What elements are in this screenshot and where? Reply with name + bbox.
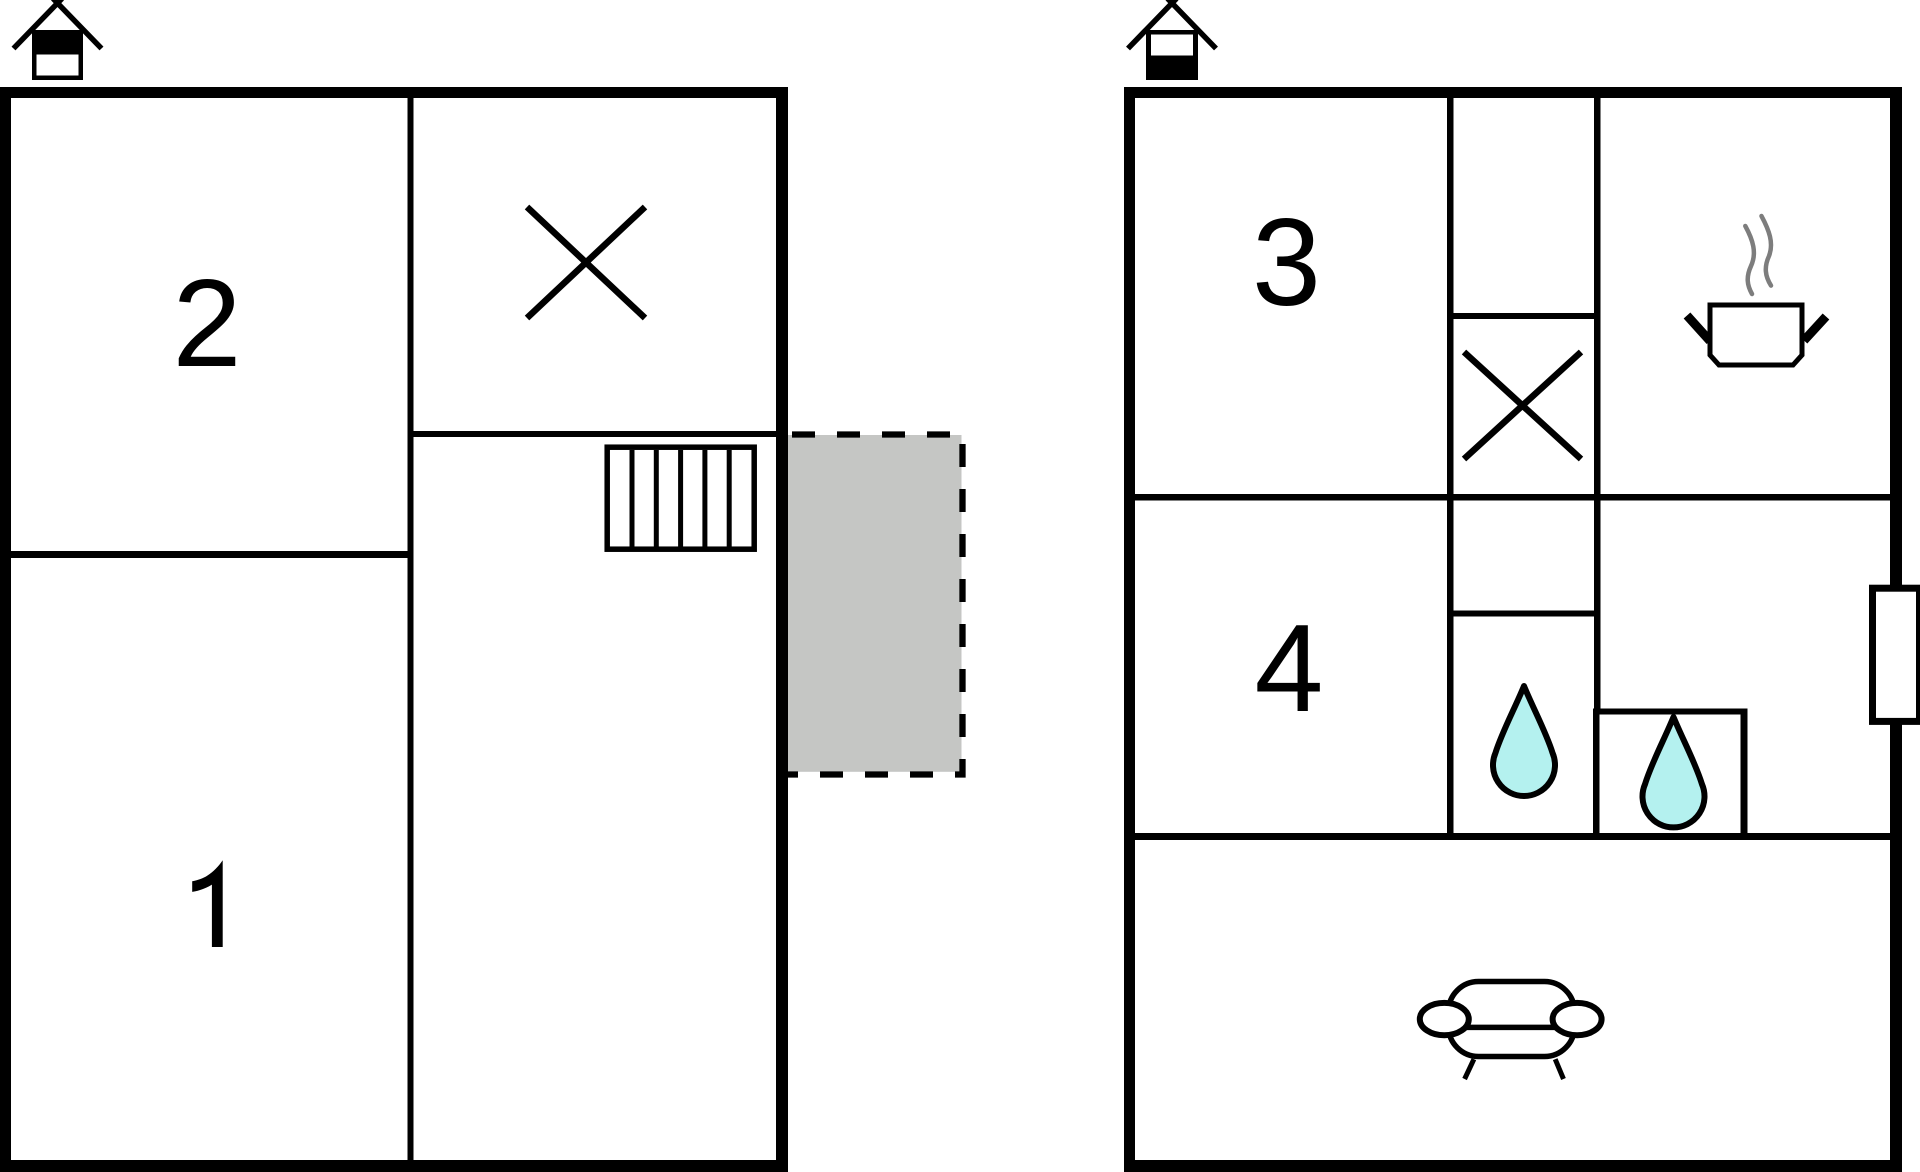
svg-text:2: 2 — [173, 255, 242, 393]
svg-text:4: 4 — [1255, 600, 1324, 738]
svg-text:3: 3 — [1252, 194, 1321, 332]
